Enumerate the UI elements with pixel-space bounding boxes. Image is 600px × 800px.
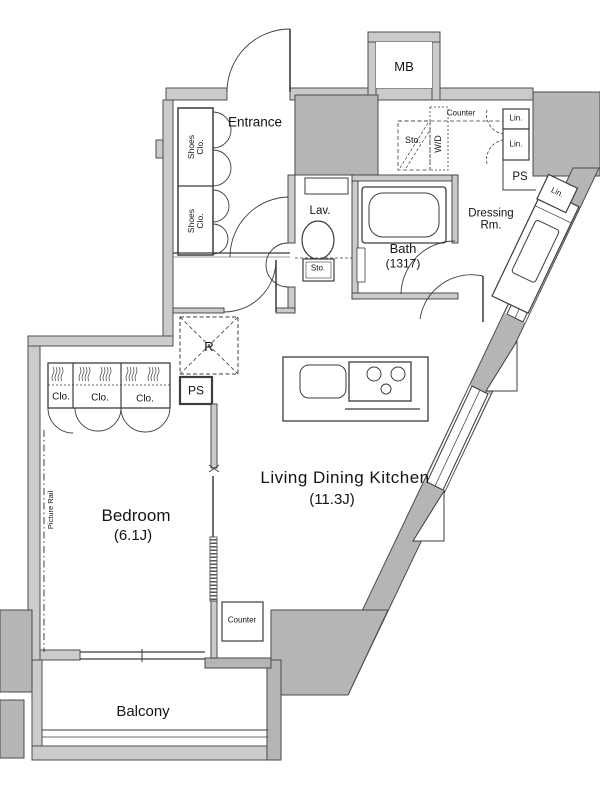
bath-size-label: (1317) [386, 258, 421, 271]
closet-label-3: Clo. [136, 395, 154, 406]
linen-label-2: Lin. [510, 141, 523, 150]
counter-upper-label: Counter [447, 110, 475, 119]
shoes-closet-doors-lower [213, 190, 229, 254]
shoes-closet-label-2: Shoes Clo. [187, 201, 205, 241]
balcony-area [42, 730, 268, 737]
entrance-label: Entrance [228, 116, 282, 131]
wall-balcony-divider [205, 658, 271, 668]
entrance-door-arc [227, 29, 290, 92]
toilet-bowl [302, 221, 334, 259]
hall-door-arc [230, 197, 290, 257]
ps-upper-label: PS [512, 171, 527, 183]
lav-door-arcs [266, 243, 288, 287]
balcony-wall-left [32, 660, 42, 760]
neighbor-block-upper [0, 610, 32, 692]
utility-bifold-door [487, 110, 503, 164]
bedroom-size-label: (6.1J) [114, 528, 152, 544]
balcony-wall-right [267, 660, 281, 760]
counter-lower-label: Counter [228, 617, 256, 626]
ps-lower-label: PS [188, 385, 204, 398]
balcony-rail-band [32, 746, 280, 760]
neighbor-block-lower [0, 700, 24, 758]
ldk-area [180, 317, 428, 658]
storage-lav-label: Sto. [311, 265, 325, 274]
wall-left-bump [156, 140, 163, 158]
wall-top-left [166, 88, 227, 100]
wall-bedroom-bottom-stub [40, 650, 80, 660]
wall-bottom-right [271, 610, 388, 695]
divider-wall-lower [211, 601, 217, 658]
floor-plan: Entrance MB Shoes Clo. Shoes Clo. Counte… [0, 0, 600, 800]
column-entrance-right [295, 95, 378, 175]
shoes-closet-label-1: Shoes Clo. [187, 127, 205, 167]
mb-label: MB [394, 60, 414, 74]
ldk-door-wall-right [276, 308, 295, 313]
bathroom-area [352, 175, 458, 299]
solid-walls [0, 92, 600, 760]
ldk-label: Living Dining Kitchen [260, 469, 429, 487]
closet-label-1: Clo. [52, 393, 70, 404]
lavatory-label: Lav. [310, 205, 331, 217]
storage-upper-label: Sto. [405, 136, 421, 146]
mb-wall-right [432, 42, 440, 100]
mb-wall-left [368, 42, 376, 100]
column-top-right [533, 92, 600, 176]
bath-counter [357, 248, 365, 282]
bath-label: Bath [390, 242, 417, 256]
linen-label-1: Lin. [510, 115, 523, 124]
ldk-size-label: (11.3J) [309, 492, 355, 508]
bath-wall-top [352, 175, 458, 181]
mb-wall-top [368, 32, 440, 42]
washer-dryer-label: W/D [434, 135, 444, 153]
bedroom-label: Bedroom [102, 507, 171, 525]
wall-bedroom-top [28, 336, 173, 346]
lav-shelf [305, 178, 348, 194]
picture-rail-label: Picture Rail [47, 491, 55, 529]
fridge-label: R [204, 340, 213, 354]
closet-door-arcs [48, 408, 170, 433]
ldk-door-arc [224, 260, 276, 312]
ldk-door-wall-left [173, 308, 224, 313]
closet-label-2: Clo. [91, 394, 109, 405]
balcony-label: Balcony [116, 704, 169, 720]
wall-left-upper [163, 100, 173, 338]
bath-wall-bottom [352, 293, 458, 299]
dressing-room-label: Dressing Rm. [458, 208, 524, 233]
corridor-wall-upper [288, 175, 295, 243]
divider-wall-upper [211, 404, 217, 468]
